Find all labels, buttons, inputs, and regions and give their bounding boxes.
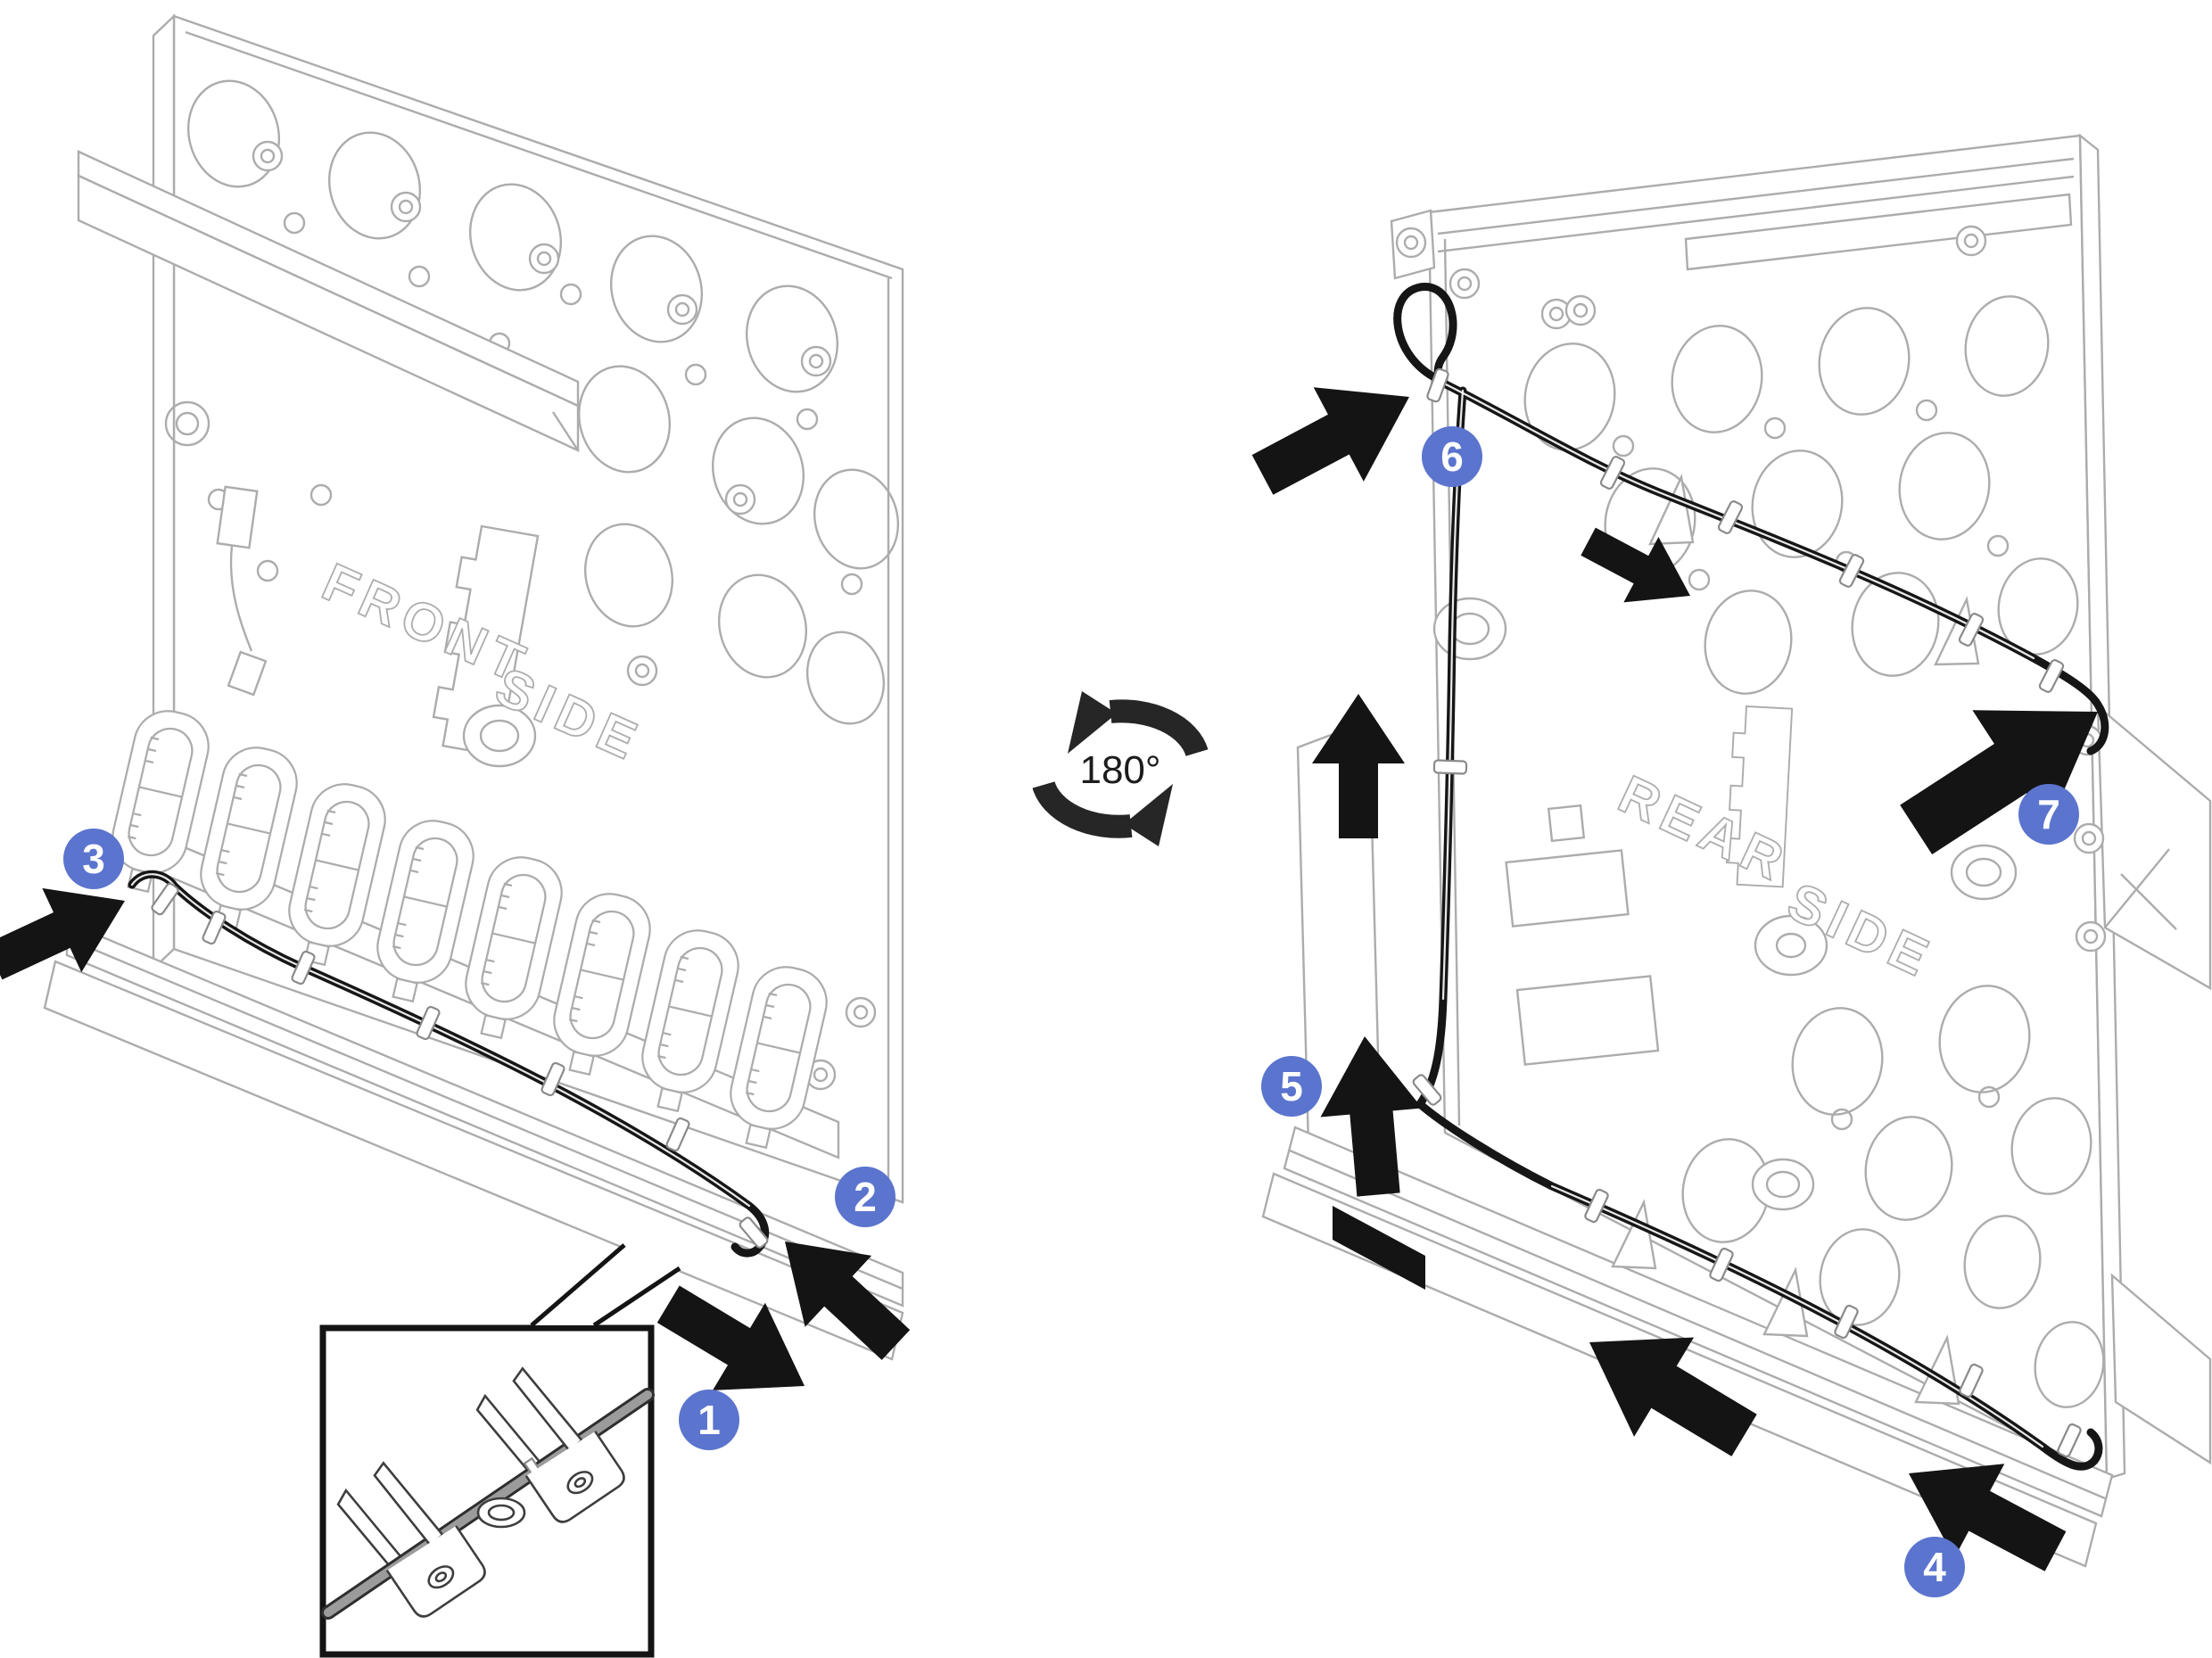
callout-7-number: 7: [2037, 791, 2060, 837]
callout-step-5: 5: [1261, 1056, 1322, 1117]
callout-step-4: 4: [1904, 1537, 1965, 1597]
cable-routing-diagram: FRONT SIDE: [0, 0, 2212, 1658]
callout-step-2: 2: [835, 1167, 896, 1227]
rear-panel: REAR SIDE: [1237, 136, 2210, 1598]
callout-1-number: 1: [697, 1397, 721, 1443]
front-panel: FRONT SIDE: [0, 16, 929, 1450]
callout-5-number: 5: [1280, 1063, 1303, 1109]
callout-6-number: 6: [1440, 433, 1464, 480]
callout-step-3: 3: [63, 829, 124, 889]
callout-step-1: 1: [679, 1390, 739, 1450]
step6-direction-arrow: [1237, 350, 1434, 522]
rotation-angle-label: 180°: [1079, 748, 1160, 792]
rotate-180-indicator: 180°: [1044, 691, 1197, 846]
callout-3-number: 3: [82, 836, 105, 882]
callout-4-number: 4: [1923, 1544, 1946, 1590]
callout-2-number: 2: [854, 1174, 877, 1220]
inset-detail-box: [323, 1245, 680, 1654]
callout-step-7: 7: [2018, 784, 2079, 845]
rotate-180-arrows-icon: [1110, 711, 1197, 753]
diagram-canvas: FRONT SIDE: [0, 0, 2212, 1658]
callout-step-6: 6: [1422, 426, 1482, 487]
